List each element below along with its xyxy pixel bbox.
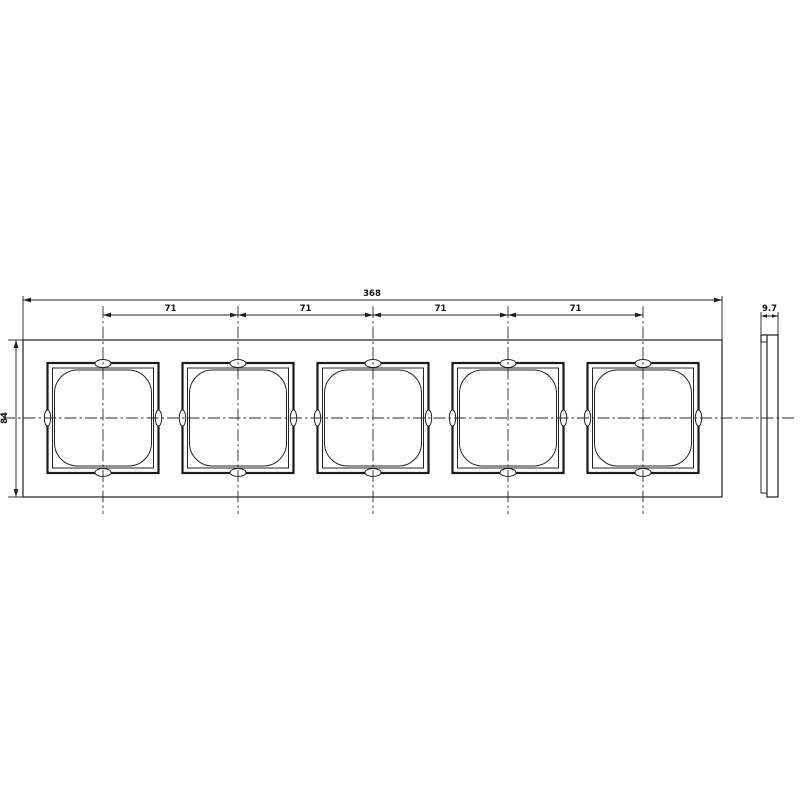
front-view: [3, 306, 796, 514]
arrowhead: [365, 313, 373, 318]
frame-module-2: [179, 306, 296, 514]
dimension-value-71: 71: [570, 304, 582, 314]
arrowhead: [508, 313, 516, 318]
arrowhead-bottom: [14, 489, 19, 497]
frame-module-1: [44, 306, 161, 514]
arrowhead-right: [714, 298, 722, 303]
dimension-value-71: 71: [435, 304, 447, 314]
dimension-value-9.7: 9.7: [762, 304, 777, 314]
side-view: [761, 335, 778, 497]
drawing-page: 368 71 71 71 71 84: [0, 0, 800, 800]
side-profile-back-rim: [761, 342, 767, 493]
arrowhead: [238, 313, 246, 318]
arrowhead-right: [772, 314, 778, 318]
dimension-total-width: 368: [23, 289, 722, 340]
arrowhead-left: [761, 314, 767, 318]
arrowhead: [635, 313, 643, 318]
arrowhead: [500, 313, 508, 318]
technical-drawing-canvas: 368 71 71 71 71 84: [0, 0, 800, 800]
frame-module-5: [584, 306, 701, 514]
dimension-value-71: 71: [300, 304, 312, 314]
arrowhead-left: [23, 298, 31, 303]
dimension-depth: 9.7: [761, 304, 778, 335]
arrowhead-top: [14, 340, 19, 348]
arrowhead: [103, 313, 111, 318]
dimension-height: 84: [0, 340, 23, 497]
arrowhead: [373, 313, 381, 318]
side-profile-body: [767, 335, 778, 497]
frame-module-4: [449, 306, 566, 514]
dimension-value-71: 71: [165, 304, 177, 314]
dimension-value-84: 84: [0, 412, 10, 424]
dimension-value-368: 368: [363, 289, 381, 299]
arrowhead: [230, 313, 238, 318]
frame-module-3: [314, 306, 431, 514]
